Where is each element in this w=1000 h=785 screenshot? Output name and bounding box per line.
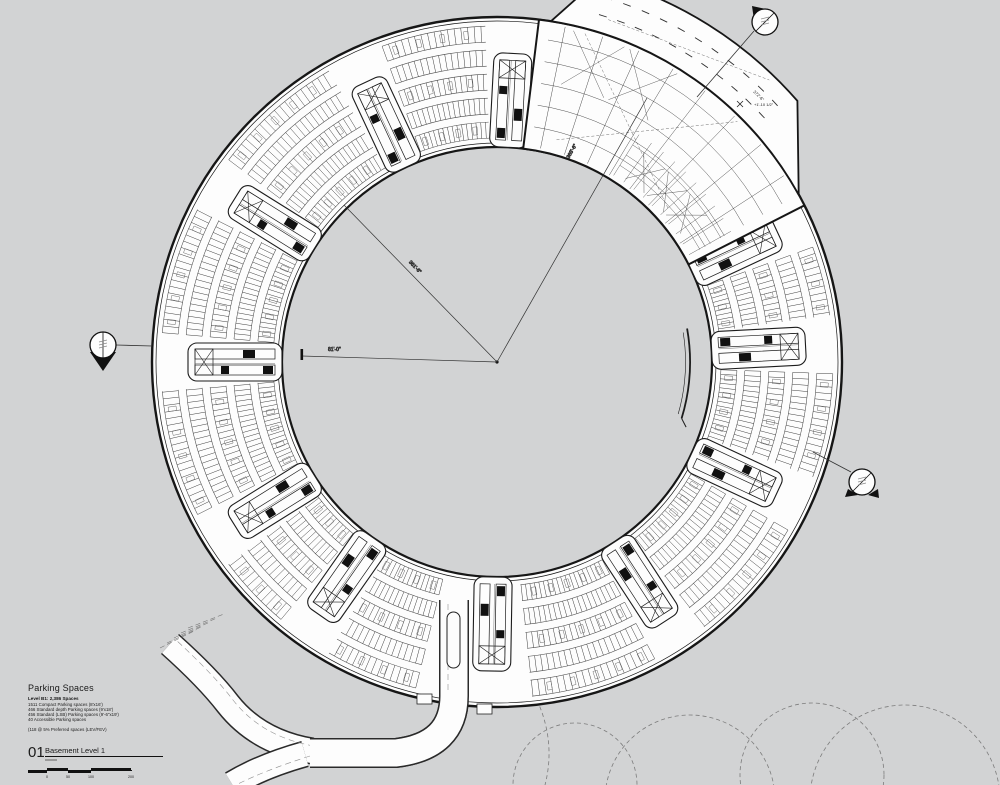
wall-pad <box>417 694 432 704</box>
ramp-median-island <box>447 612 460 668</box>
drawing-sheet: +1'-10 1/2"372'-6"368'-6"361'-6"81'-0" P… <box>0 0 1000 785</box>
legend-line: 40 Accessible Parking spaces <box>28 717 86 723</box>
sheet-subtitle-mark <box>45 759 57 761</box>
courtyard-dimension: 81'-0" <box>328 347 341 353</box>
stair-core-module <box>711 327 807 370</box>
plan-svg: +1'-10 1/2"372'-6"368'-6"361'-6"81'-0" <box>0 0 1000 785</box>
scale-label: 100 <box>88 775 94 779</box>
scale-label: 50 <box>66 775 70 779</box>
legend-note: (118 @ 5% Preferred spaces (LEV/FEV) <box>28 727 107 732</box>
dim-tick <box>301 349 304 360</box>
scale-label: 200 <box>128 775 134 779</box>
scale-bar: 0 50 100 200 <box>28 768 132 782</box>
scale-label: 0 <box>46 775 48 779</box>
legend-title: Parking Spaces <box>28 683 94 693</box>
stair-core-module <box>473 577 513 672</box>
wall-pad <box>477 704 492 714</box>
stair-core-module <box>188 343 282 381</box>
sheet-number: 01 <box>28 744 45 761</box>
spot-elevation-label: +1'-10 1/2" <box>754 102 774 107</box>
sheet-title: Basement Level 1 <box>45 746 163 757</box>
legend-summary: Level B1: 2,386 Spaces <box>28 696 79 701</box>
